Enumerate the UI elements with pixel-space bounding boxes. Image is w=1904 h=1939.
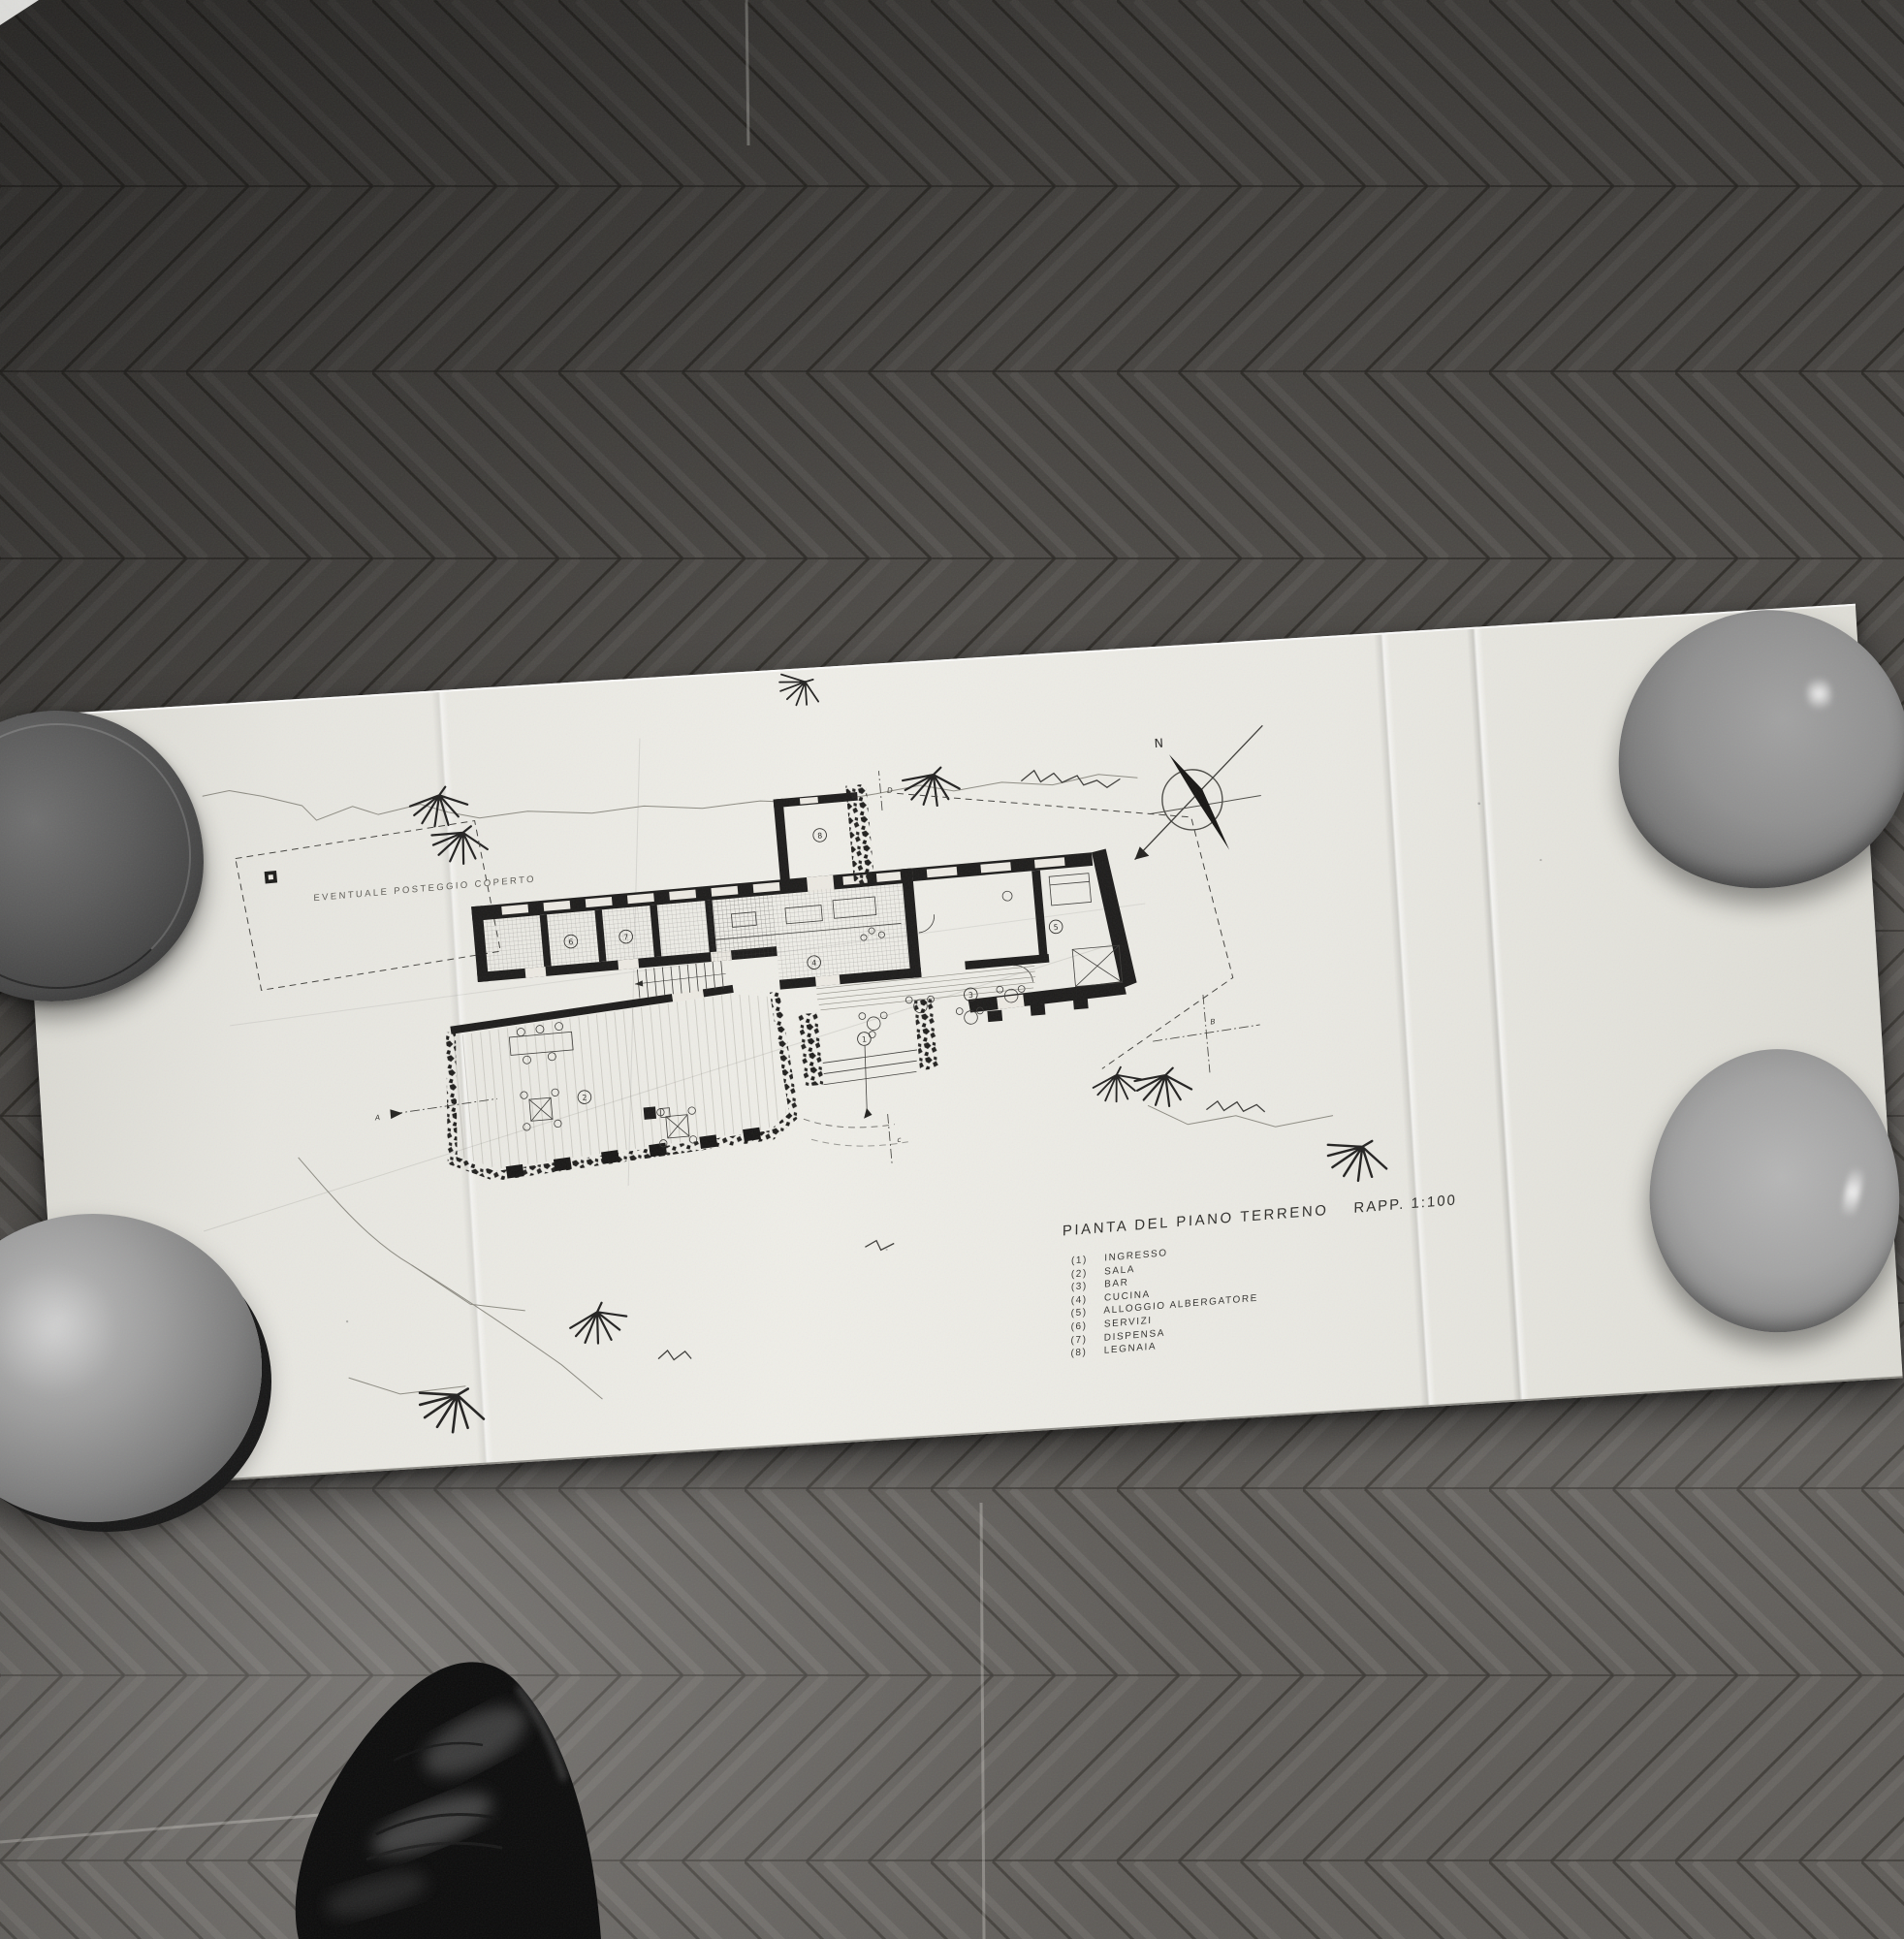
legend-num: 7 — [1071, 1333, 1100, 1347]
construction-lines — [175, 676, 1703, 1331]
svg-text:8: 8 — [817, 831, 823, 840]
terrain-sketch-lower-left — [299, 1122, 904, 1447]
lodging-block — [912, 847, 1139, 1028]
svg-text:D: D — [887, 786, 894, 795]
section-marker-c: c — [888, 1113, 904, 1165]
legend-label: SALA — [1104, 1264, 1135, 1278]
photo-scene: N — [0, 0, 1904, 1939]
parking-dashed-outline — [234, 819, 502, 991]
room-legend: 1 INGRESSO 2 SALA 3 BAR 4 CUCINA 5 ALLOG… — [1070, 1240, 1258, 1361]
shoe — [231, 1635, 638, 1939]
section-marker-b: B — [1149, 990, 1263, 1077]
svg-text:3: 3 — [968, 991, 974, 1000]
svg-text:2: 2 — [582, 1094, 587, 1102]
legend-label: BAR — [1104, 1278, 1128, 1290]
roof-overhang-dashed — [897, 766, 1240, 1085]
compass-north-letter: N — [1154, 736, 1163, 751]
svg-text:B: B — [1210, 1017, 1216, 1026]
svg-text:1: 1 — [862, 1034, 868, 1043]
legend-num: 4 — [1071, 1293, 1100, 1307]
rock-sketch — [1021, 765, 1121, 792]
legend-num: 3 — [1071, 1280, 1100, 1293]
svg-text:A: A — [374, 1113, 381, 1122]
room-number-8: 8 — [812, 828, 827, 842]
svg-text:6: 6 — [568, 938, 574, 946]
hall-area — [440, 984, 798, 1183]
svg-text:7: 7 — [623, 933, 629, 941]
legend-num: 5 — [1071, 1306, 1100, 1319]
svg-text:5: 5 — [1053, 923, 1059, 932]
legend-num: 2 — [1071, 1267, 1100, 1281]
legend-num: 6 — [1071, 1319, 1100, 1333]
svg-text:4: 4 — [811, 959, 817, 968]
legend-num: 1 — [1071, 1254, 1100, 1267]
compass-rose: N — [1127, 725, 1271, 859]
svg-text:c: c — [897, 1135, 902, 1144]
section-marker-d: D — [878, 770, 894, 811]
legend-num: 8 — [1070, 1346, 1099, 1359]
room-number-5: 5 — [1049, 920, 1063, 935]
floor-seam — [746, 0, 748, 145]
terrain-sketch-right — [1089, 1046, 1393, 1202]
